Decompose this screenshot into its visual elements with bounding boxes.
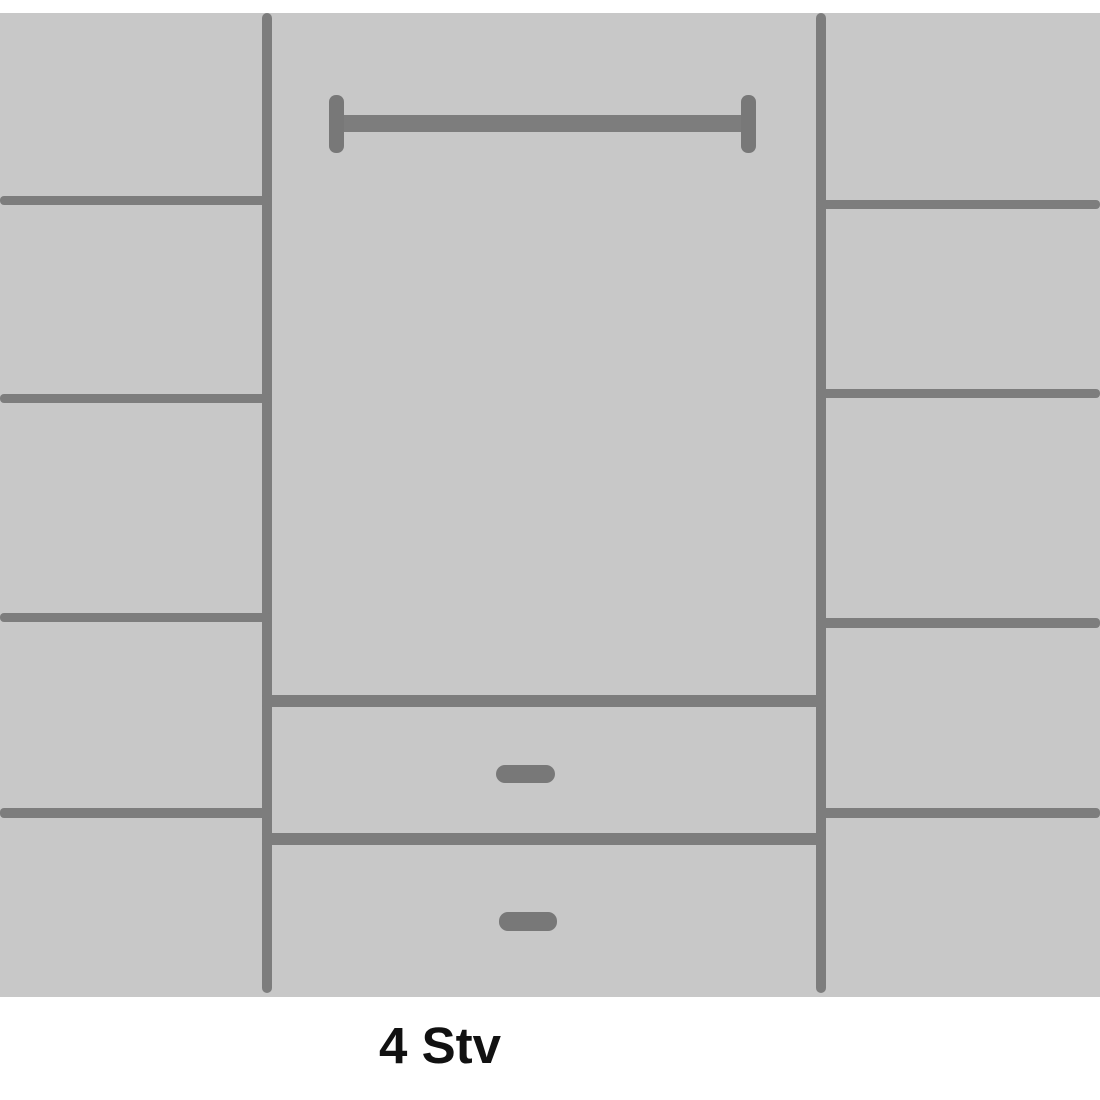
left-shelf-line-3 [0,613,271,622]
clothes-rail-end-left [329,95,344,153]
divider-panel-left [262,13,272,993]
clothes-rail-end-right [741,95,756,153]
left-shelf-line-2 [0,394,271,403]
wardrobe-body-panel [0,13,1100,997]
left-shelf-line-1 [0,196,271,205]
right-shelf-line-4 [816,808,1100,818]
right-shelf-line-3 [816,618,1100,628]
drawer-handle-bottom [499,912,557,931]
quantity-label: 4 Stv [280,1020,600,1071]
right-shelf-line-2 [816,389,1100,398]
drawer-top-edge-line [262,695,826,707]
drawer-separator-line [262,833,826,845]
divider-panel-right [816,13,826,993]
wardrobe-diagram: 4 Stv [0,0,1100,1100]
clothes-rail-bar [336,115,748,132]
left-shelf-line-4 [0,808,271,818]
right-shelf-line-1 [816,200,1100,209]
drawer-handle-top [496,765,555,783]
